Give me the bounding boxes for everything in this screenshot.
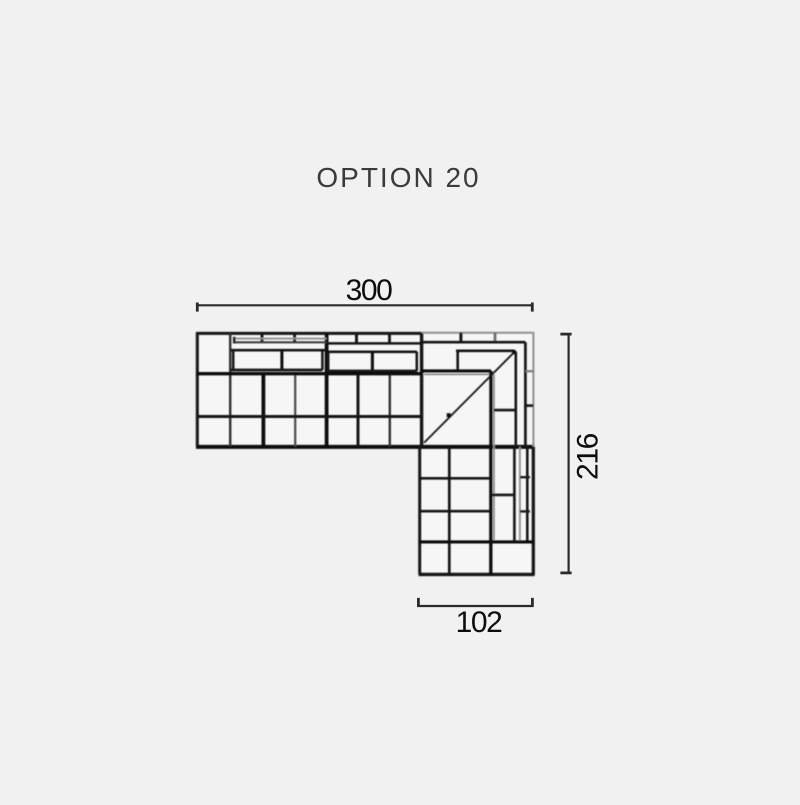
svg-text:OPTION 20: OPTION 20: [316, 162, 480, 193]
svg-text:300: 300: [346, 274, 393, 307]
svg-text:102: 102: [456, 606, 503, 639]
svg-text:216: 216: [572, 433, 605, 480]
